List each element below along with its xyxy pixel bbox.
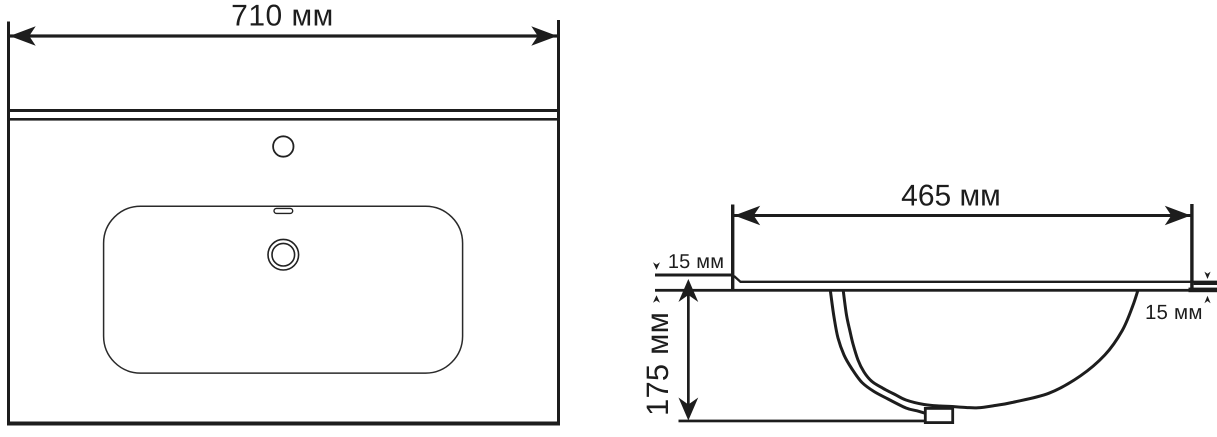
svg-text:710 мм: 710 мм [231,0,334,33]
svg-text:175 мм: 175 мм [640,312,675,416]
svg-text:15 мм: 15 мм [1145,301,1203,324]
svg-text:465 мм: 465 мм [901,180,1001,213]
svg-text:15 мм: 15 мм [668,251,724,273]
